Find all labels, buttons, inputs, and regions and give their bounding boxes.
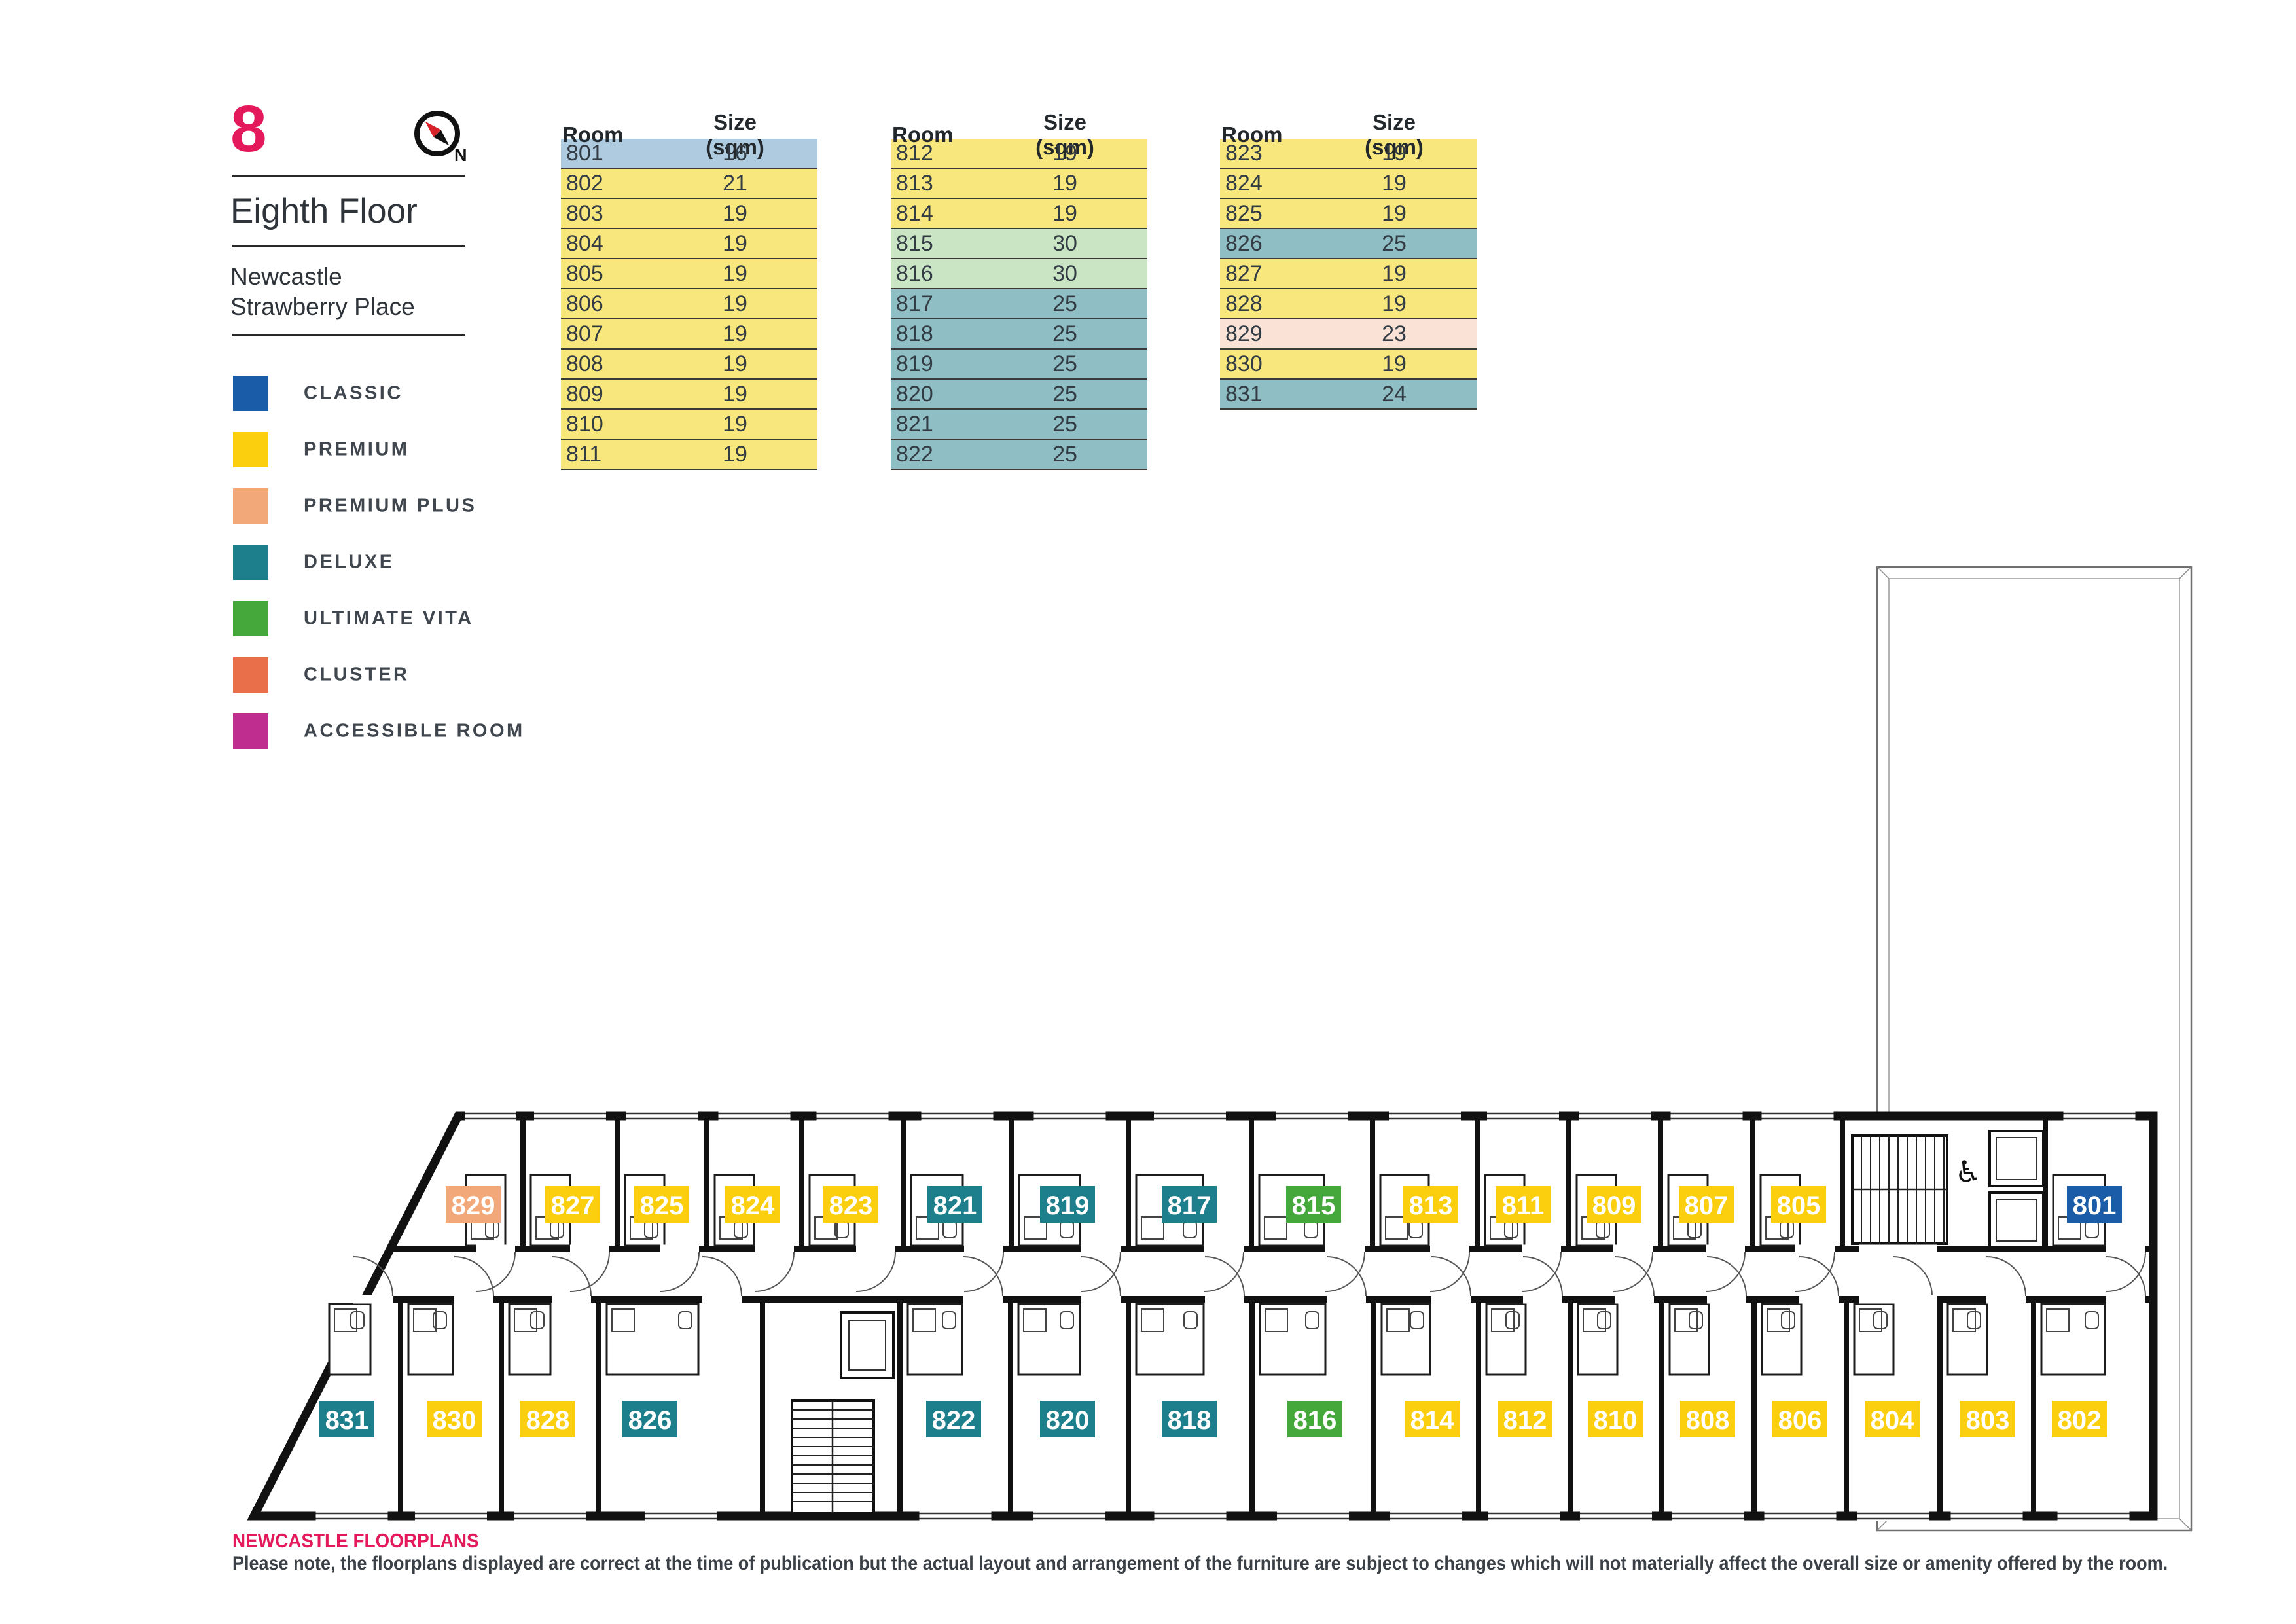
svg-text:802: 802 xyxy=(2058,1406,2102,1435)
room-badge-822: 822 xyxy=(926,1401,981,1437)
room-badge-806: 806 xyxy=(1772,1401,1827,1437)
floorplan-drawing: ♿829827825824823821819817815813811809807… xyxy=(0,0,2296,1624)
svg-text:809: 809 xyxy=(1592,1191,1636,1220)
room-badge-803: 803 xyxy=(1960,1401,2015,1437)
room-badge-820: 820 xyxy=(1040,1401,1095,1437)
room-badge-824: 824 xyxy=(725,1186,780,1223)
svg-text:812: 812 xyxy=(1503,1406,1547,1435)
room-badge-826: 826 xyxy=(622,1401,677,1437)
svg-text:820: 820 xyxy=(1046,1406,1090,1435)
floorplan-page: 8 N Eighth Floor Newcastle Strawberry Pl… xyxy=(0,0,2296,1624)
svg-text:829: 829 xyxy=(452,1191,495,1220)
svg-text:814: 814 xyxy=(1410,1406,1454,1435)
room-badge-828: 828 xyxy=(520,1401,575,1437)
room-badge-809: 809 xyxy=(1587,1186,1641,1223)
room-badge-801: 801 xyxy=(2067,1186,2122,1223)
room-badge-814: 814 xyxy=(1405,1401,1460,1437)
svg-text:827: 827 xyxy=(551,1191,595,1220)
svg-text:822: 822 xyxy=(932,1406,976,1435)
svg-text:821: 821 xyxy=(933,1191,977,1220)
svg-text:828: 828 xyxy=(526,1406,570,1435)
svg-text:819: 819 xyxy=(1046,1191,1090,1220)
room-badge-823: 823 xyxy=(823,1186,878,1223)
svg-text:817: 817 xyxy=(1168,1191,1211,1220)
svg-text:804: 804 xyxy=(1871,1406,1914,1435)
footer-disclaimer: Please note, the floorplans displayed ar… xyxy=(232,1553,2168,1575)
svg-text:824: 824 xyxy=(731,1191,775,1220)
room-badge-802: 802 xyxy=(2052,1401,2107,1437)
svg-text:808: 808 xyxy=(1686,1406,1730,1435)
room-badge-807: 807 xyxy=(1679,1186,1734,1223)
footer-heading: NEWCASTLE FLOORPLANS xyxy=(232,1529,479,1553)
room-badge-810: 810 xyxy=(1588,1401,1643,1437)
room-badge-830: 830 xyxy=(427,1401,482,1437)
svg-text:803: 803 xyxy=(1966,1406,2010,1435)
room-badge-812: 812 xyxy=(1498,1401,1552,1437)
room-badge-818: 818 xyxy=(1162,1401,1217,1437)
svg-text:805: 805 xyxy=(1777,1191,1821,1220)
room-badge-831: 831 xyxy=(319,1401,374,1437)
svg-text:816: 816 xyxy=(1293,1406,1337,1435)
svg-text:811: 811 xyxy=(1502,1191,1545,1220)
room-badge-815: 815 xyxy=(1286,1186,1341,1223)
svg-text:810: 810 xyxy=(1594,1406,1638,1435)
svg-text:831: 831 xyxy=(325,1406,369,1435)
svg-text:826: 826 xyxy=(628,1406,672,1435)
room-badge-804: 804 xyxy=(1865,1401,1920,1437)
svg-text:818: 818 xyxy=(1168,1406,1211,1435)
room-badge-827: 827 xyxy=(545,1186,600,1223)
svg-text:815: 815 xyxy=(1292,1191,1336,1220)
room-badge-816: 816 xyxy=(1287,1401,1342,1437)
accessible-icon: ♿ xyxy=(1954,1154,1981,1189)
room-badge-805: 805 xyxy=(1771,1186,1826,1223)
svg-text:806: 806 xyxy=(1778,1406,1822,1435)
room-badge-829: 829 xyxy=(446,1186,501,1223)
svg-text:813: 813 xyxy=(1409,1191,1453,1220)
room-badge-819: 819 xyxy=(1040,1186,1095,1223)
svg-text:830: 830 xyxy=(433,1406,476,1435)
svg-text:801: 801 xyxy=(2073,1191,2117,1220)
room-badge-813: 813 xyxy=(1403,1186,1458,1223)
svg-text:807: 807 xyxy=(1685,1191,1729,1220)
room-badge-811: 811 xyxy=(1496,1186,1551,1223)
room-badge-817: 817 xyxy=(1162,1186,1217,1223)
svg-text:823: 823 xyxy=(829,1191,873,1220)
room-badge-825: 825 xyxy=(634,1186,689,1223)
svg-text:825: 825 xyxy=(640,1191,684,1220)
room-badge-821: 821 xyxy=(927,1186,982,1223)
room-badge-808: 808 xyxy=(1680,1401,1735,1437)
